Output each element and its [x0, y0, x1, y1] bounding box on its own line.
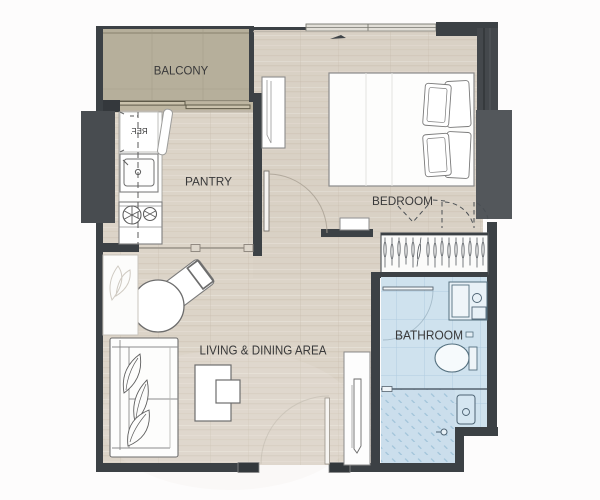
svg-text:REF.: REF.	[130, 127, 147, 136]
svg-text:LIVING & DINING AREA: LIVING & DINING AREA	[200, 344, 328, 358]
svg-text:PANTRY: PANTRY	[185, 175, 232, 189]
svg-text:BATHROOM: BATHROOM	[395, 329, 463, 343]
svg-text:BEDROOM: BEDROOM	[372, 194, 433, 208]
svg-text:BALCONY: BALCONY	[154, 64, 209, 78]
